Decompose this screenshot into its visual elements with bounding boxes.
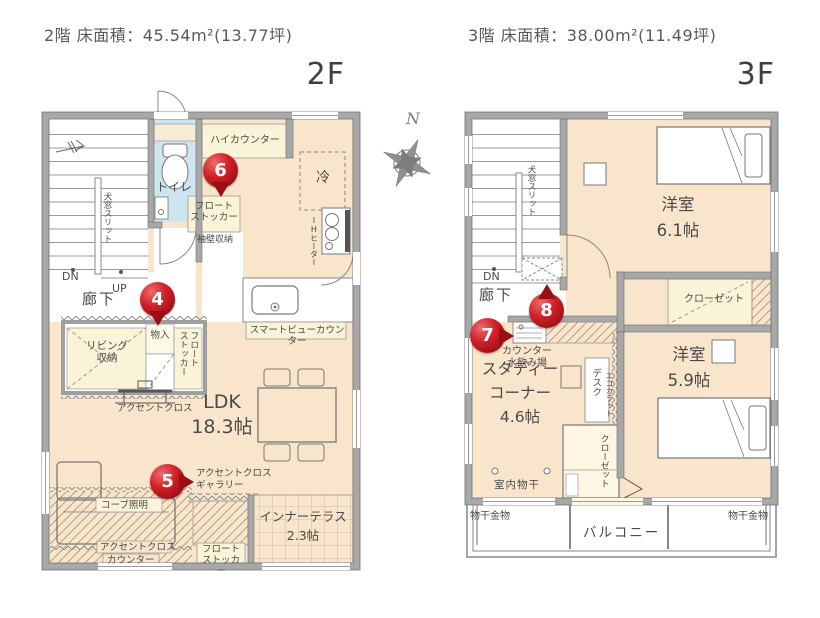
compass-north-label: N xyxy=(406,110,420,129)
floor3-big-label: 3F xyxy=(725,57,775,92)
label-float-stocker-terrace: フロート ストッカー xyxy=(198,544,244,578)
ih-stove-icon xyxy=(322,208,350,254)
floorplan-graphics xyxy=(0,0,820,618)
marker-4[interactable]: 4 xyxy=(140,282,175,317)
stairs-3f xyxy=(472,125,562,285)
label-accent-cloth-tv: アクセントクロス xyxy=(117,403,193,414)
label-desk: デスク xyxy=(590,368,601,414)
label-cove-lighting: コーブ照明 xyxy=(101,500,148,511)
label-window-slit-2f: 犬窓スリット xyxy=(102,192,112,278)
floor2-title: 2階 床面積：45.54m²(13.77坪) xyxy=(44,27,292,46)
marker-6-number: 6 xyxy=(214,160,227,181)
marker-4-number: 4 xyxy=(151,289,164,310)
closet-study xyxy=(563,425,619,498)
marker-6[interactable]: 6 xyxy=(203,153,238,188)
marker-8[interactable]: 8 xyxy=(529,293,564,328)
label-high-counter: ハイカウンター xyxy=(203,135,287,147)
label-closet-61: クローゼット xyxy=(684,294,744,306)
label-toilet: トイレ xyxy=(152,180,196,194)
label-ldk: LDK 18.3帖 xyxy=(186,390,258,439)
label-storage: 物入 xyxy=(146,330,174,341)
label-bedroom-59: 洋室 5.9帖 xyxy=(648,342,730,395)
label-ecocarat: エコカラット xyxy=(604,372,613,426)
stairs-2f xyxy=(49,125,148,282)
label-counter-2f: カウンター xyxy=(107,555,155,566)
label-drying-hardware-right: 物干金物 xyxy=(728,511,768,523)
label-smart-view-counter: スマートビューカウンター xyxy=(248,325,346,347)
label-window-slit-3f: 犬窓スリット xyxy=(526,165,536,251)
sink-counter-icon xyxy=(243,278,353,322)
label-drying-hardware-left: 物干金物 xyxy=(470,511,510,523)
label-study-corner: スタディー コーナー 4.6帖 xyxy=(474,357,566,429)
floor2-big-label: 2F xyxy=(295,57,345,92)
compass-icon xyxy=(383,139,430,186)
marker-5[interactable]: 5 xyxy=(150,464,185,499)
label-closet-study: クローゼット xyxy=(598,434,609,496)
label-indoor-drying: 室内物干 xyxy=(494,479,540,491)
label-accent-cloth-gallery: アクセントクロス ギャラリー xyxy=(196,468,272,492)
label-inner-terrace: インナーテラス 2.3帖 xyxy=(255,508,351,546)
label-ih-heater: IHヒーター xyxy=(309,216,318,268)
label-bedroom-61: 洋室 6.1帖 xyxy=(637,192,719,245)
label-hallway-3f: 廊下 xyxy=(479,287,513,305)
label-hallway-2f: 廊下 xyxy=(82,291,116,309)
label-sode-wall-storage: 袖壁収納 xyxy=(197,235,233,246)
marker-5-number: 5 xyxy=(161,471,174,492)
label-fridge: 冷 xyxy=(306,170,340,187)
floor3-title: 3階 床面積：38.00m²(11.49坪) xyxy=(468,27,716,46)
marker-7-number: 7 xyxy=(481,325,494,346)
marker-7[interactable]: 7 xyxy=(470,318,505,353)
label-dn-3f: DN xyxy=(483,271,500,284)
label-float-stocker-kitchen: フロート ストッカー xyxy=(189,201,239,223)
label-float-stocker-living: フロート ストッカー xyxy=(177,331,198,381)
marker-8-number: 8 xyxy=(540,300,553,321)
label-accent-cloth-sofa: アクセントクロス xyxy=(100,542,176,553)
label-living-storage: リビング 収納 xyxy=(82,340,132,365)
label-balcony: バルコニー xyxy=(583,526,660,542)
bed-icon xyxy=(657,127,770,184)
label-dn-2f: DN xyxy=(62,271,79,284)
bed-icon-2 xyxy=(658,398,770,458)
